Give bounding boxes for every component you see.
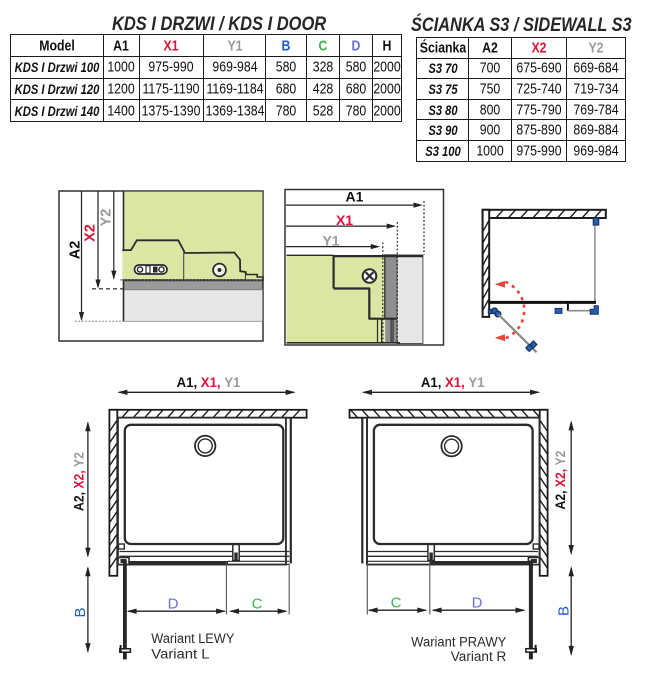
svg-text:C: C	[252, 596, 263, 613]
svg-text:Y1: Y1	[322, 232, 339, 248]
svg-text:A1, X1, Y1: A1, X1, Y1	[177, 375, 241, 390]
svg-text:Variant R: Variant R	[451, 649, 507, 664]
svg-text:Y2: Y2	[98, 209, 114, 227]
svg-text:A2, X2, Y2: A2, X2, Y2	[552, 451, 568, 510]
svg-text:D: D	[168, 596, 179, 613]
svg-text:Wariant PRAWY: Wariant PRAWY	[411, 634, 506, 650]
svg-text:X1: X1	[336, 212, 353, 228]
svg-text:B: B	[556, 606, 573, 616]
svg-text:A1, X1, Y1: A1, X1, Y1	[421, 375, 485, 390]
svg-text:Variant L: Variant L	[151, 647, 209, 663]
svg-text:Wariant LEWY: Wariant LEWY	[151, 630, 234, 646]
svg-text:D: D	[472, 595, 483, 612]
svg-text:X2: X2	[82, 224, 98, 242]
svg-text:B: B	[72, 607, 89, 617]
svg-text:A2: A2	[67, 241, 83, 260]
svg-text:A2, X2, Y2: A2, X2, Y2	[71, 452, 87, 511]
svg-text:C: C	[391, 595, 402, 612]
svg-text:A1: A1	[346, 189, 364, 205]
